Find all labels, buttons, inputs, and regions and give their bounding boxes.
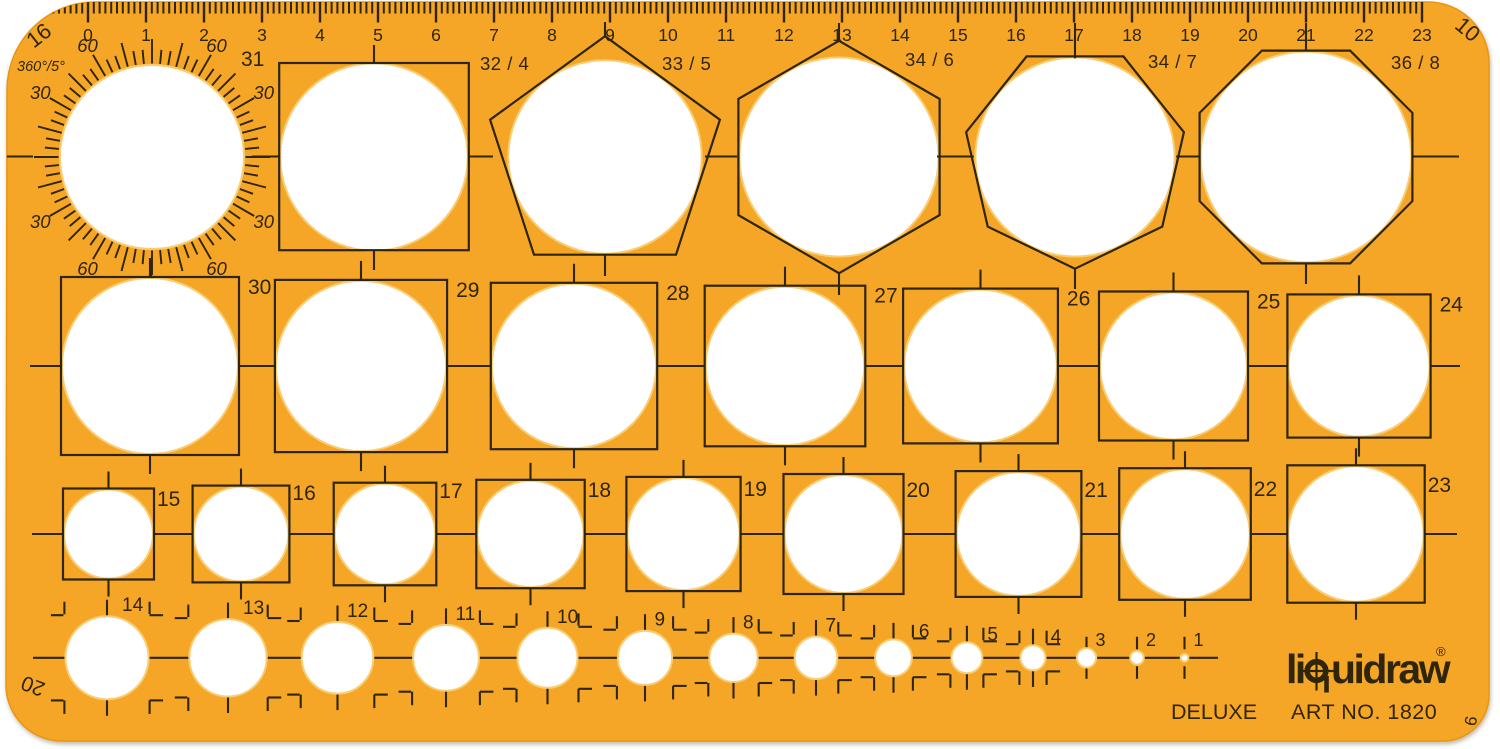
- svg-text:li: li: [1286, 646, 1304, 692]
- svg-text:22: 22: [1254, 478, 1277, 501]
- svg-text:19: 19: [744, 478, 767, 501]
- svg-text:14: 14: [890, 25, 910, 45]
- svg-text:24: 24: [1440, 293, 1464, 316]
- svg-text:12: 12: [347, 601, 368, 622]
- svg-text:13: 13: [243, 598, 264, 619]
- svg-text:30: 30: [30, 82, 51, 103]
- svg-text:3: 3: [1096, 630, 1106, 650]
- svg-text:10: 10: [557, 607, 578, 628]
- svg-text:28: 28: [666, 282, 689, 305]
- svg-text:7: 7: [826, 616, 837, 637]
- svg-text:uidraw: uidraw: [1331, 646, 1451, 692]
- svg-text:17: 17: [439, 480, 462, 503]
- svg-text:30: 30: [253, 211, 274, 232]
- svg-text:2: 2: [1146, 630, 1156, 650]
- svg-text:360°/5°: 360°/5°: [17, 59, 65, 75]
- svg-text:5: 5: [987, 624, 998, 645]
- svg-text:34 / 7: 34 / 7: [1148, 51, 1197, 72]
- svg-text:11: 11: [456, 604, 476, 625]
- svg-text:30: 30: [248, 276, 271, 299]
- svg-text:14: 14: [122, 595, 144, 616]
- svg-text:6: 6: [919, 621, 930, 642]
- svg-text:23: 23: [1412, 25, 1431, 45]
- svg-text:8: 8: [743, 613, 754, 634]
- svg-text:1: 1: [141, 25, 151, 45]
- svg-text:20: 20: [907, 479, 930, 502]
- svg-text:18: 18: [588, 479, 611, 502]
- svg-text:60: 60: [77, 35, 98, 56]
- svg-text:16: 16: [1006, 25, 1025, 45]
- svg-text:4: 4: [1051, 627, 1062, 648]
- svg-text:6: 6: [431, 25, 441, 45]
- svg-text:DELUXE: DELUXE: [1171, 700, 1257, 724]
- svg-text:15: 15: [948, 25, 967, 45]
- svg-text:26: 26: [1067, 288, 1090, 311]
- svg-text:33 / 5: 33 / 5: [662, 53, 711, 74]
- svg-text:7: 7: [489, 25, 499, 45]
- svg-text:20: 20: [1238, 25, 1258, 45]
- svg-text:27: 27: [874, 285, 897, 308]
- svg-text:25: 25: [1257, 291, 1280, 314]
- svg-text:60: 60: [206, 35, 227, 56]
- svg-text:3: 3: [257, 25, 267, 45]
- svg-text:9: 9: [655, 610, 666, 631]
- svg-text:5: 5: [373, 25, 383, 45]
- svg-text:36 / 8: 36 / 8: [1391, 52, 1440, 73]
- svg-text:30: 30: [30, 211, 51, 232]
- svg-text:11: 11: [717, 25, 735, 45]
- svg-text:10: 10: [658, 25, 678, 45]
- svg-text:®: ®: [1436, 644, 1446, 659]
- svg-text:18: 18: [1122, 25, 1141, 45]
- svg-text:22: 22: [1354, 25, 1373, 45]
- svg-text:1: 1: [1194, 630, 1204, 650]
- svg-text:29: 29: [456, 279, 479, 302]
- svg-text:30: 30: [253, 82, 274, 103]
- svg-text:16: 16: [292, 482, 315, 505]
- svg-text:31: 31: [241, 48, 264, 71]
- svg-text:ART NO. 1820: ART NO. 1820: [1291, 700, 1437, 724]
- svg-text:23: 23: [1428, 474, 1451, 497]
- svg-text:21: 21: [1084, 479, 1107, 502]
- svg-text:12: 12: [774, 25, 793, 45]
- svg-text:8: 8: [547, 25, 557, 45]
- svg-text:15: 15: [157, 488, 180, 511]
- svg-text:32 / 4: 32 / 4: [480, 53, 529, 74]
- svg-text:19: 19: [1180, 25, 1199, 45]
- svg-text:34 / 6: 34 / 6: [905, 49, 954, 70]
- svg-text:4: 4: [315, 25, 325, 45]
